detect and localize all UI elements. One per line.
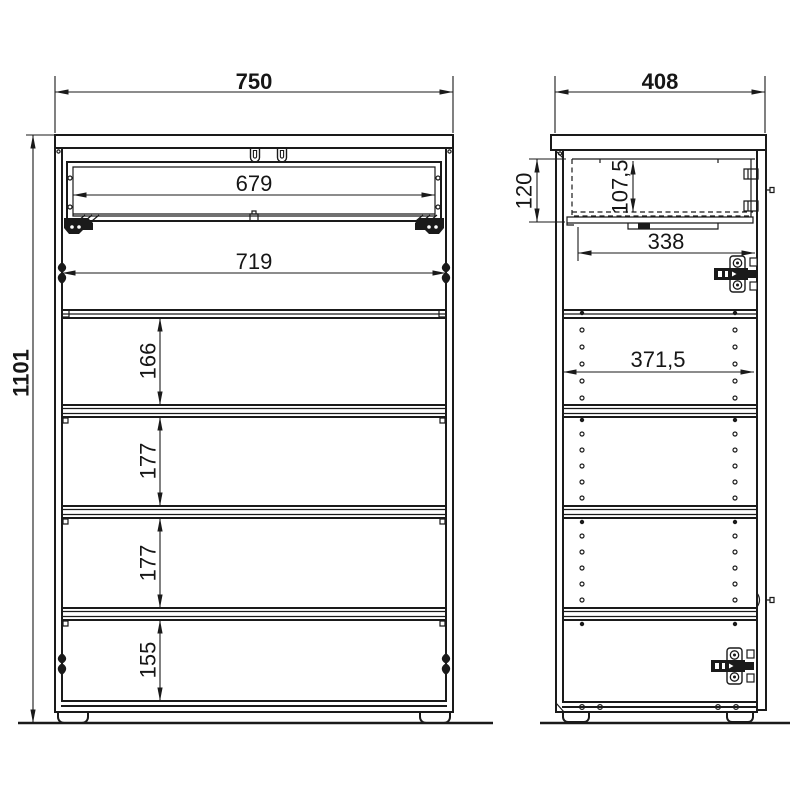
fv-shelf-3 [62, 506, 446, 518]
fv-corner-screw-left [57, 150, 60, 153]
fv-shelf-2-detail [62, 409, 446, 424]
sv-front-edge [757, 150, 766, 710]
fv-slide-screw [70, 225, 74, 229]
sv-drawer-hidden [567, 159, 758, 229]
sv-corner-screw [558, 152, 561, 155]
dim-label-overall-width: 750 [236, 69, 273, 94]
fv-shelves [62, 310, 446, 626]
dim-label-shelf-spacing-4: 155 [136, 642, 161, 679]
door-hinge-bottom [711, 648, 754, 684]
keyhole-hanger-icon [251, 148, 260, 162]
dim-label-interior-depth: 371,5 [630, 347, 685, 372]
fv-slide-screw [77, 225, 81, 229]
sv-foot-right [727, 712, 753, 722]
front-view: 750 1101 679 719 166 177 177 155 [9, 69, 493, 723]
drawing-canvas: 750 1101 679 719 166 177 177 155 [0, 0, 800, 800]
dim-front-overall-height: 1101 [9, 135, 54, 723]
sv-shelf-3 [563, 506, 757, 518]
dim-shelf-spacing-1: 166 [136, 318, 161, 405]
side-view: 408 120 107,5 338 371,5 [512, 69, 790, 723]
fv-drawer-screw [68, 205, 72, 209]
dim-label-drawer-front-height: 120 [512, 173, 537, 210]
fv-drawer-screw [436, 205, 440, 209]
cam-lock-fitting [442, 653, 450, 675]
sv-shelf-4 [563, 608, 757, 620]
sv-shelf-4-detail [563, 612, 757, 617]
sv-drawer-hidden-lines [572, 159, 753, 216]
cam-lock-fitting [58, 653, 66, 675]
fv-slide-screw [427, 225, 431, 229]
dim-interior-width: 719 [62, 249, 446, 274]
fv-drawer-screw [68, 176, 72, 180]
fv-fixed-shelf-detail [62, 310, 446, 317]
dim-label-overall-height: 1101 [9, 349, 34, 397]
fv-shelf-2 [62, 405, 446, 417]
dim-drawer-side-height: 107,5 [608, 159, 633, 214]
dim-shelf-spacing-2: 177 [136, 417, 161, 506]
dim-drawer-depth: 338 [578, 227, 755, 261]
dim-label-drawer-depth: 338 [648, 229, 685, 254]
sv-foot-left [563, 712, 589, 722]
fv-corner-screw-right [448, 150, 451, 153]
sv-shelf-3-detail [563, 510, 757, 515]
keyhole-hanger-icon [278, 148, 287, 162]
sv-slide-rail [567, 217, 753, 229]
dim-label-drawer-inner-width: 679 [236, 171, 273, 196]
dim-side-overall-depth: 408 [555, 69, 765, 133]
furniture-dimension-drawing: 750 1101 679 719 166 177 177 155 [0, 0, 800, 800]
fv-shelf-4 [62, 608, 446, 620]
fv-shelf-3-detail [62, 510, 446, 525]
dim-interior-depth: 371,5 [563, 347, 754, 372]
fv-foot-left [58, 712, 88, 723]
sv-shelf-2 [563, 405, 757, 417]
dim-front-overall-width: 750 [55, 69, 453, 133]
dim-label-shelf-spacing-1: 166 [136, 343, 161, 380]
door-hinge-top [714, 256, 757, 292]
dim-shelf-spacing-4: 155 [136, 620, 161, 701]
fv-slide-screw [434, 225, 438, 229]
dim-label-shelf-spacing-3: 177 [136, 545, 161, 582]
sv-shelf-2-detail [563, 409, 757, 414]
fv-foot-right [420, 712, 450, 723]
dim-label-overall-depth: 408 [642, 69, 679, 94]
dim-label-interior-width: 719 [236, 249, 273, 274]
dim-drawer-front-height: 120 [512, 159, 566, 222]
dim-shelf-spacing-3: 177 [136, 518, 161, 608]
sv-drawer-top-line [572, 159, 755, 217]
fv-drawer-screw [436, 176, 440, 180]
fv-shelf-4-detail [62, 612, 446, 627]
dim-label-shelf-spacing-2: 177 [136, 443, 161, 480]
dim-label-drawer-side-height: 107,5 [608, 159, 633, 214]
dim-drawer-inner-width: 679 [73, 171, 435, 196]
